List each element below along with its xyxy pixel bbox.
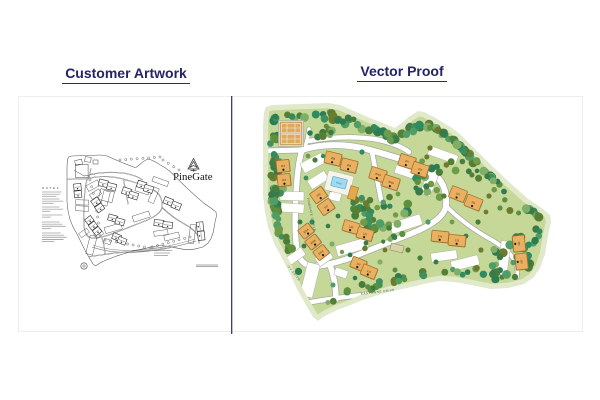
svg-text:N O T E S: N O T E S	[42, 186, 59, 190]
svg-text:PineGate: PineGate	[173, 171, 213, 183]
